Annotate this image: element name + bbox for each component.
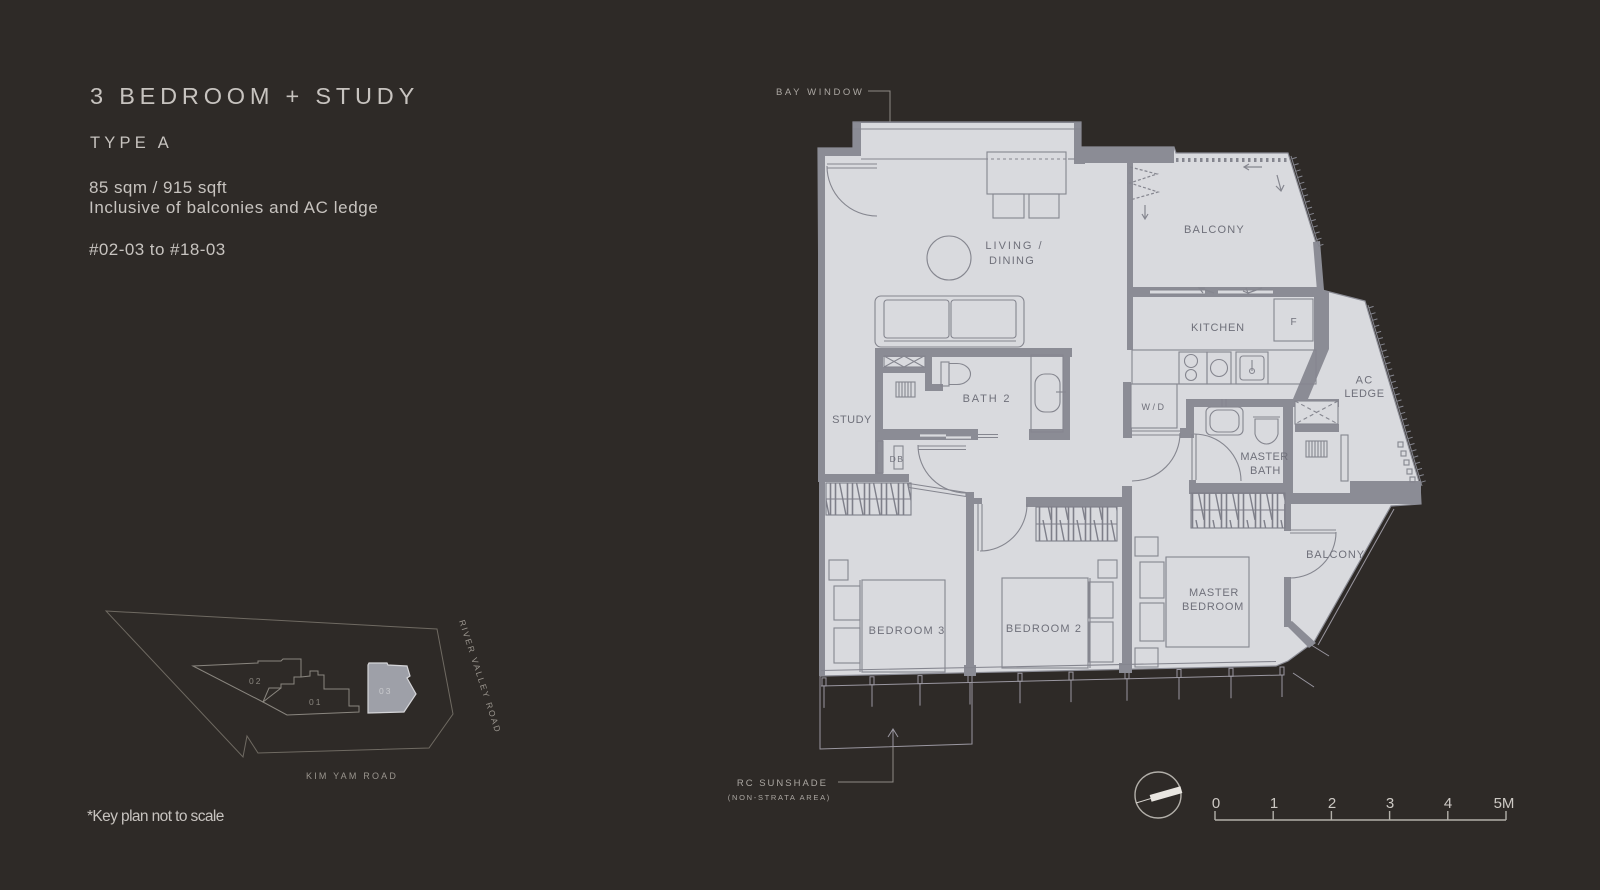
svg-text:BAY WINDOW: BAY WINDOW xyxy=(776,87,864,98)
svg-text:MASTER: MASTER xyxy=(1240,451,1288,463)
svg-text:3: 3 xyxy=(1386,795,1394,812)
svg-text:(NON-STRATA AREA): (NON-STRATA AREA) xyxy=(728,793,831,802)
svg-text:STUDY: STUDY xyxy=(832,414,872,426)
svg-text:MASTER: MASTER xyxy=(1189,587,1239,599)
svg-text:DINING: DINING xyxy=(989,255,1035,267)
svg-text:4: 4 xyxy=(1444,795,1452,812)
svg-text:RC SUNSHADE: RC SUNSHADE xyxy=(737,778,828,789)
svg-text:BALCONY: BALCONY xyxy=(1184,224,1245,236)
svg-text:BEDROOM 3: BEDROOM 3 xyxy=(869,625,946,637)
svg-text:LIVING /: LIVING / xyxy=(985,240,1043,252)
svg-text:3 BEDROOM + STUDY: 3 BEDROOM + STUDY xyxy=(90,83,419,109)
svg-text:DB: DB xyxy=(890,454,905,464)
svg-text:BATH: BATH xyxy=(1250,465,1281,477)
svg-text:1: 1 xyxy=(1270,795,1278,812)
svg-text:W/D: W/D xyxy=(1142,402,1167,412)
svg-text:85 sqm / 915 sqft: 85 sqm / 915 sqft xyxy=(89,178,227,197)
svg-text:AC: AC xyxy=(1356,375,1374,387)
svg-text:Inclusive of balconies and AC: Inclusive of balconies and AC ledge xyxy=(89,198,378,217)
svg-text:#02-03 to #18-03: #02-03 to #18-03 xyxy=(89,240,226,259)
svg-text:2: 2 xyxy=(1328,795,1336,812)
svg-text:02: 02 xyxy=(249,676,262,686)
svg-text:03: 03 xyxy=(379,686,392,696)
svg-text:F: F xyxy=(1290,317,1296,328)
svg-text:LEDGE: LEDGE xyxy=(1344,388,1384,400)
svg-text:0: 0 xyxy=(1212,795,1220,812)
svg-text:5M: 5M xyxy=(1494,795,1515,812)
svg-text:01: 01 xyxy=(309,697,322,707)
svg-text:BEDROOM 2: BEDROOM 2 xyxy=(1006,623,1082,635)
svg-text:TYPE A: TYPE A xyxy=(90,134,173,152)
svg-text:KIM YAM ROAD: KIM YAM ROAD xyxy=(306,771,398,781)
svg-text:BALCONY: BALCONY xyxy=(1306,549,1365,561)
svg-text:BATH 2: BATH 2 xyxy=(963,393,1012,405)
svg-text:BEDROOM: BEDROOM xyxy=(1182,601,1244,613)
svg-text:*Key plan not to scale: *Key plan not to scale xyxy=(87,808,224,825)
svg-text:KITCHEN: KITCHEN xyxy=(1191,322,1245,334)
